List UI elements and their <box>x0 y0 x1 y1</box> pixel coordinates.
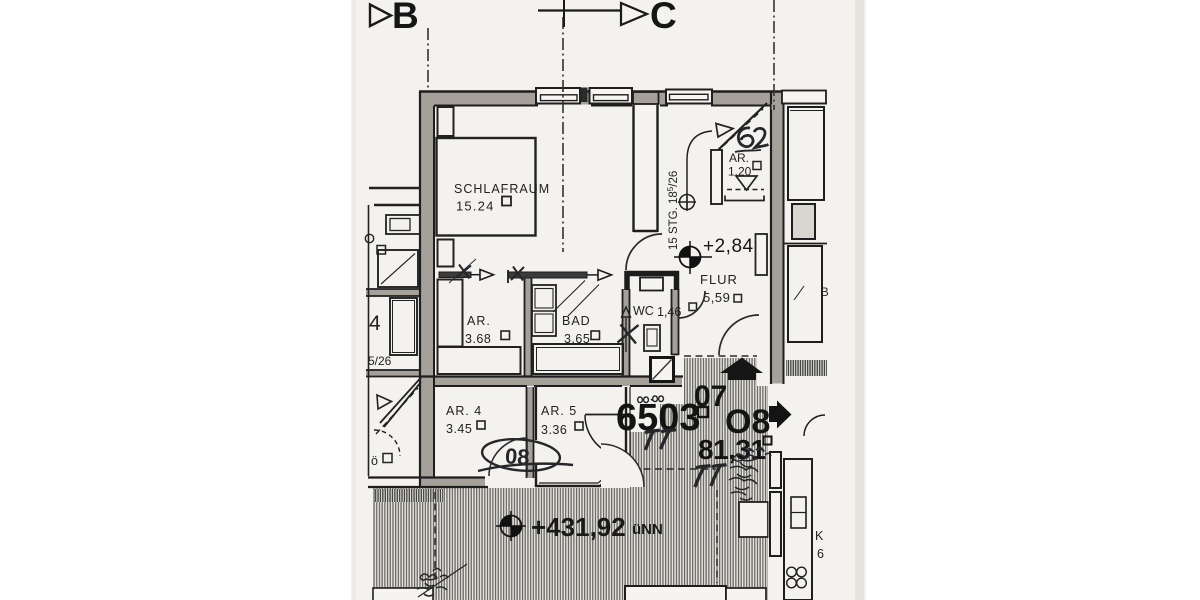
svg-text:3.45: 3.45 <box>446 422 472 436</box>
svg-text:üNN: üNN <box>632 521 663 538</box>
svg-text:+2,84: +2,84 <box>703 236 754 257</box>
svg-text:5/26: 5/26 <box>368 354 392 368</box>
svg-text:AR. 4: AR. 4 <box>446 404 482 418</box>
svg-text:15 STG. 185/26: 15 STG. 185/26 <box>666 171 680 250</box>
svg-text:AR.: AR. <box>467 314 491 328</box>
svg-text:1.20: 1.20 <box>728 165 752 179</box>
svg-text:81,31: 81,31 <box>698 434 766 465</box>
svg-text:1,46: 1,46 <box>657 305 681 319</box>
svg-text:3.68: 3.68 <box>465 332 491 346</box>
svg-text:B: B <box>392 0 419 36</box>
svg-text:6: 6 <box>817 547 824 561</box>
svg-text:3.65: 3.65 <box>564 332 590 346</box>
svg-text:SCHLAFRAUM: SCHLAFRAUM <box>454 182 550 196</box>
svg-text:BAD: BAD <box>562 314 591 328</box>
svg-text:ö: ö <box>371 454 378 468</box>
svg-text:WC: WC <box>633 304 654 318</box>
svg-text:15.24: 15.24 <box>456 199 495 214</box>
svg-text:K: K <box>815 529 824 543</box>
svg-text:3.36: 3.36 <box>541 423 567 437</box>
svg-text:B: B <box>821 287 829 299</box>
svg-text:4: 4 <box>369 312 381 335</box>
svg-text:6503: 6503 <box>616 397 701 439</box>
svg-text:AR. 5: AR. 5 <box>541 404 577 418</box>
svg-text:AR.: AR. <box>729 151 749 165</box>
svg-text:FLUR: FLUR <box>700 272 738 287</box>
svg-text:5,59: 5,59 <box>703 290 730 305</box>
svg-text:+431,92: +431,92 <box>531 512 626 542</box>
svg-text:C: C <box>650 0 677 36</box>
svg-text:07: 07 <box>694 380 727 413</box>
